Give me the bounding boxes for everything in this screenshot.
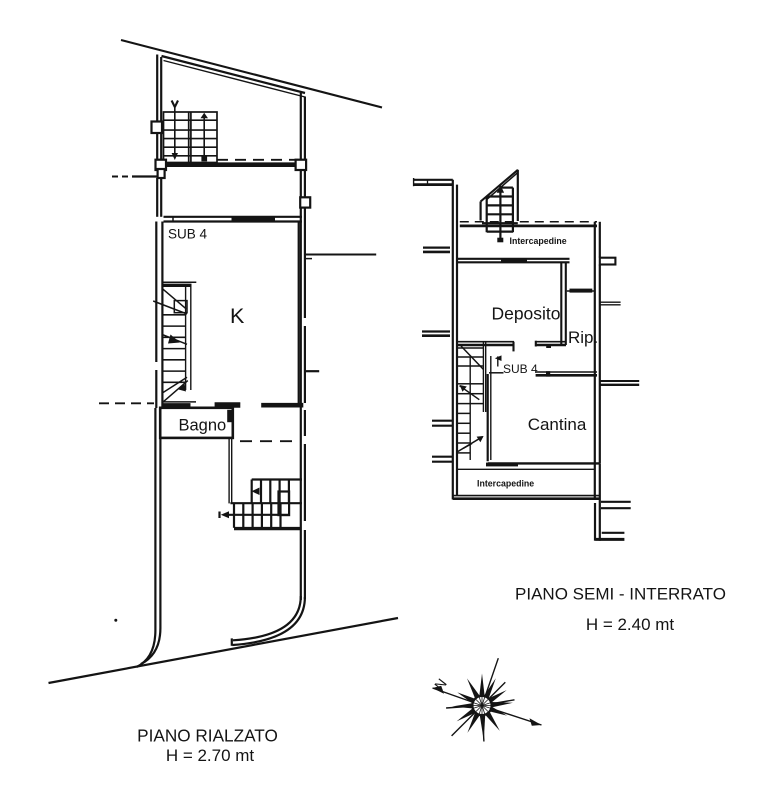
svg-text:Bagno: Bagno	[179, 417, 227, 435]
svg-text:PIANO RIALZATO: PIANO RIALZATO	[137, 726, 278, 746]
svg-text:SUB 4: SUB 4	[503, 362, 538, 376]
svg-text:Intercapedine: Intercapedine	[510, 236, 567, 246]
svg-text:K: K	[230, 304, 245, 328]
svg-text:H = 2.40 mt: H = 2.40 mt	[586, 615, 675, 634]
svg-text:N: N	[431, 675, 450, 693]
svg-text:Cantina: Cantina	[528, 415, 587, 434]
svg-text:Rip.: Rip.	[568, 328, 598, 347]
svg-text:SUB 4: SUB 4	[168, 227, 208, 242]
svg-text:PIANO SEMI - INTERRATO: PIANO SEMI - INTERRATO	[515, 585, 726, 604]
svg-text:Intercapedine: Intercapedine	[477, 479, 534, 489]
svg-text:Deposito: Deposito	[491, 304, 560, 324]
svg-text:H = 2.70 mt: H = 2.70 mt	[166, 746, 255, 765]
